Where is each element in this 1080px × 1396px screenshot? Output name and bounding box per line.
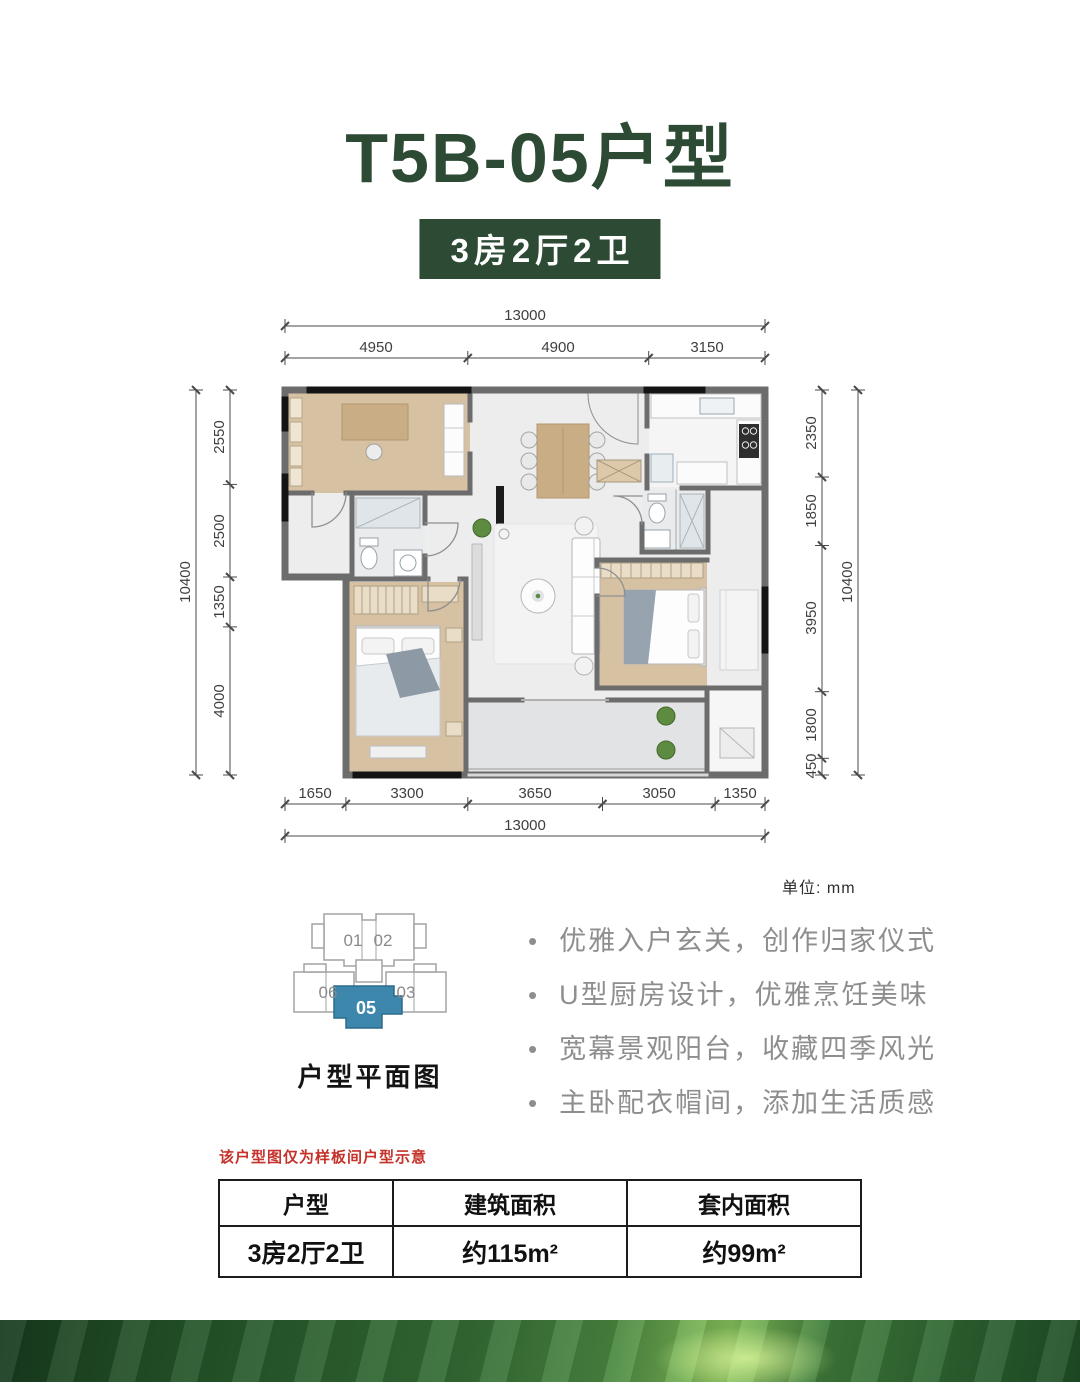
keyplan-unit-05: 05 — [356, 998, 376, 1018]
dim-left-seg3: 1350 — [211, 585, 228, 618]
col-header-net-area: 套内面积 — [627, 1180, 861, 1226]
unit-note: 单位: mm — [782, 874, 856, 898]
vanity2 — [644, 530, 670, 548]
feature-text: 主卧配衣帽间，添加生活质感 — [559, 1088, 936, 1119]
dim-right-seg5: 450 — [803, 753, 820, 778]
feature-item: •优雅入户玄关，创作归家仪式 — [528, 926, 936, 957]
vanity1 — [394, 550, 422, 576]
bullet-icon: • — [528, 926, 539, 957]
side-table — [575, 657, 593, 675]
plant — [657, 741, 675, 759]
floorplan-poster: T5B-05户型 3房2厅2卫 — [0, 0, 1080, 1396]
dim-bottom-seg1: 1650 — [298, 785, 331, 802]
cell-type: 3房2厅2卫 — [219, 1226, 393, 1277]
feature-item: •主卧配衣帽间，添加生活质感 — [528, 1088, 936, 1119]
dim-top-seg1: 4950 — [359, 339, 392, 356]
nightstand — [446, 722, 462, 736]
kitchen-sink — [700, 398, 734, 414]
dim-top-seg2: 4900 — [541, 339, 574, 356]
keyplan-unit-02: 02 — [374, 931, 393, 950]
keyplan-block: 01 02 06 03 05 户型平面图 — [286, 906, 454, 1094]
dim-right-seg2: 1850 — [803, 494, 820, 527]
toilet2 — [649, 503, 665, 523]
desk-chair — [366, 444, 382, 460]
dim-right-seg4: 1800 — [803, 708, 820, 741]
feature-item: •宽幕景观阳台，收藏四季风光 — [528, 1034, 936, 1065]
page-title: T5B-05户型 — [0, 102, 1080, 203]
spec-table-header-row: 户型 建筑面积 套内面积 — [219, 1180, 861, 1226]
col-header-type: 户型 — [219, 1180, 393, 1226]
dim-bottom-total: 13000 — [504, 817, 546, 834]
nightstand — [446, 628, 462, 642]
keyplan-unit-06: 06 — [319, 983, 338, 1002]
dim-top-seg3: 3150 — [690, 339, 723, 356]
bullet-icon: • — [528, 980, 539, 1011]
feature-text: 优雅入户玄关，创作归家仪式 — [559, 926, 936, 957]
layout-badge: 3房2厅2卫 — [419, 219, 660, 279]
dim-right-seg1: 2350 — [803, 416, 820, 449]
dim-right-total: 10400 — [839, 561, 856, 603]
spec-table: 户型 建筑面积 套内面积 3房2厅2卫 约115m² 约99m² — [218, 1179, 862, 1278]
dim-bottom-seg4: 3050 — [642, 785, 675, 802]
desk — [342, 404, 408, 440]
dim-right-seg3: 3950 — [803, 601, 820, 634]
dim-left-seg1: 2550 — [211, 420, 228, 453]
keyplan-svg: 01 02 06 03 05 — [290, 906, 450, 1036]
keyplan-caption: 户型平面图 — [286, 1057, 454, 1094]
col-header-gross-area: 建筑面积 — [393, 1180, 627, 1226]
plant — [657, 707, 675, 725]
floorplan-svg: 13000 4950 4900 3150 1650 3300 3650 3050… — [160, 298, 920, 863]
toilet1 — [361, 547, 377, 569]
dim-bottom-seg5: 1350 — [723, 785, 756, 802]
cell-gross-area: 约115m² — [393, 1226, 627, 1277]
study-sofa — [444, 404, 464, 476]
feature-text: U型厨房设计，优雅烹饪美味 — [559, 980, 929, 1011]
floorplan-figure: 13000 4950 4900 3150 1650 3300 3650 3050… — [160, 298, 920, 863]
dim-bottom-seg2: 3300 — [390, 785, 423, 802]
kitchen-counter-bottom — [677, 462, 727, 484]
dim-top-total: 13000 — [504, 307, 546, 324]
plant — [473, 519, 491, 537]
footer-green-band — [0, 1320, 1080, 1382]
keyplan-unit-01: 01 — [344, 931, 363, 950]
bullet-icon: • — [528, 1034, 539, 1065]
disclaimer-note: 该户型图仅为样板间户型示意 — [219, 1146, 427, 1167]
dim-left-seg4: 4000 — [211, 684, 228, 717]
keyplan-unit-03: 03 — [397, 983, 416, 1002]
dim-left-total: 10400 — [177, 561, 194, 603]
bed-bench — [370, 746, 426, 758]
feature-item: •U型厨房设计，优雅烹饪美味 — [528, 980, 936, 1011]
fridge — [651, 454, 673, 482]
bullet-icon: • — [528, 1088, 539, 1119]
side-table — [575, 517, 593, 535]
dim-bottom-seg3: 3650 — [518, 785, 551, 802]
spec-table-data-row: 3房2厅2卫 约115m² 约99m² — [219, 1226, 861, 1277]
dim-left-seg2: 2500 — [211, 514, 228, 547]
feature-list: •优雅入户玄关，创作归家仪式 •U型厨房设计，优雅烹饪美味 •宽幕景观阳台，收藏… — [528, 926, 936, 1142]
feature-text: 宽幕景观阳台，收藏四季风光 — [559, 1034, 936, 1065]
tv-cabinet — [472, 544, 482, 640]
cell-net-area: 约99m² — [627, 1226, 861, 1277]
